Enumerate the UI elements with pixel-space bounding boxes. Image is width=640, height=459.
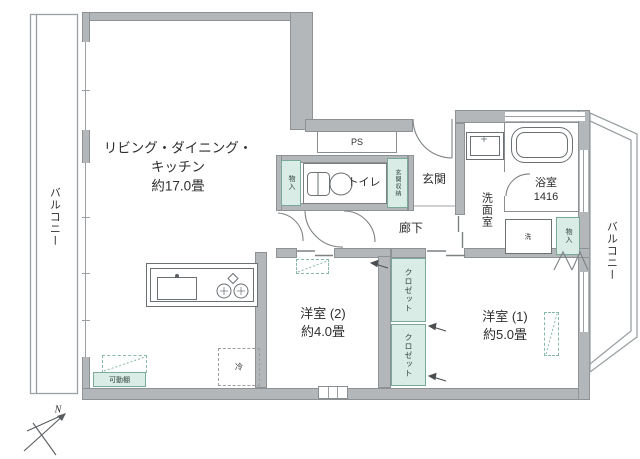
bathroom-name: 浴室: [534, 176, 558, 190]
hallway-label: 廊下: [399, 222, 423, 236]
window: [81, 42, 90, 130]
floorplan: 物入 玄関収納 クロゼット クロゼット 物入 可動棚 リビング・ダイニング・ キ…: [0, 0, 640, 459]
wall-top-ldk: [82, 12, 313, 21]
entrance-label: 玄関: [422, 173, 446, 187]
north-label: N: [55, 404, 62, 416]
wall-vent: [318, 386, 348, 399]
window: [580, 150, 588, 212]
laundry-label: 洗: [525, 233, 532, 240]
western1-name: 洋室 (1): [482, 308, 528, 326]
window: [580, 272, 588, 332]
bathroom-door-arc: [506, 174, 530, 196]
ldk-label-line1: リビング・ダイニング・: [104, 139, 253, 158]
fridge-label: 冷: [235, 362, 243, 371]
room2-dashed-box: [296, 259, 329, 274]
wall-entrance-left: [408, 155, 414, 211]
washroom-sink-icon: [467, 133, 504, 160]
storage-right-box: 物入: [556, 217, 580, 255]
bathtub-icon: [512, 128, 573, 163]
room1-dashed-box: [544, 312, 559, 356]
bathroom-label: 浴室 1416: [534, 176, 558, 204]
ldk-door-arc: [278, 213, 303, 241]
western1-size: 約5.0畳: [482, 326, 528, 344]
faucet-icon: [175, 274, 179, 278]
ldk-label-line2: キッチン: [104, 158, 253, 177]
toilet-label: トイレ: [348, 177, 381, 190]
ldk-label: リビング・ダイニング・ キッチン 約17.0畳: [104, 139, 253, 196]
closet-lower-box: クロゼット: [391, 324, 426, 386]
balcony-right-label: バルコニー: [605, 221, 618, 281]
wall-hall-seg1: [276, 248, 297, 258]
storage-left-box: 物入: [281, 160, 301, 206]
wall-closet-top: [391, 248, 426, 258]
window: [505, 112, 585, 121]
washroom-label: 洗面室: [480, 192, 493, 228]
movable-shelf-box: 可動棚: [93, 372, 146, 387]
entrance-storage-box: 玄関収納: [387, 158, 408, 208]
wall-washroom-divider: [455, 123, 465, 215]
window: [81, 163, 90, 357]
closet-lower-label: クロゼット: [403, 333, 414, 378]
wall-room2-right: [378, 256, 391, 388]
entrance-storage-label: 玄関収納: [393, 169, 402, 197]
toilet-door-arc: [344, 211, 375, 242]
ldk-label-line3: 約17.0畳: [104, 177, 253, 196]
stove-icon: [217, 274, 248, 299]
storage-left-label: 物入: [286, 175, 296, 191]
storage-right-label: 物入: [563, 228, 573, 244]
closet-upper-box: クロゼット: [391, 258, 426, 322]
window-lines: [82, 42, 585, 398]
bathroom-size: 1416: [534, 190, 558, 204]
shelf-dashed-box: [102, 355, 147, 373]
closet-upper-label: クロゼット: [403, 268, 414, 313]
western2-name: 洋室 (2): [300, 305, 346, 323]
balcony-left-label: バルコニー: [48, 187, 61, 247]
ps-label: PS: [351, 137, 363, 147]
entrance-door-arc: [413, 119, 452, 158]
movable-shelf-label: 可動棚: [109, 375, 130, 385]
western2-label: 洋室 (2) 約4.0畳: [300, 305, 346, 341]
compass-icon: [24, 413, 66, 455]
wall-vertical-upper: [290, 12, 313, 130]
western1-label: 洋室 (1) 約5.0畳: [482, 308, 528, 344]
western2-size: 約4.0畳: [300, 323, 346, 341]
kitchen-sink-icon: [158, 278, 197, 300]
kitchen-counter-icon: [147, 264, 258, 307]
hall-door-arc: [305, 211, 343, 247]
